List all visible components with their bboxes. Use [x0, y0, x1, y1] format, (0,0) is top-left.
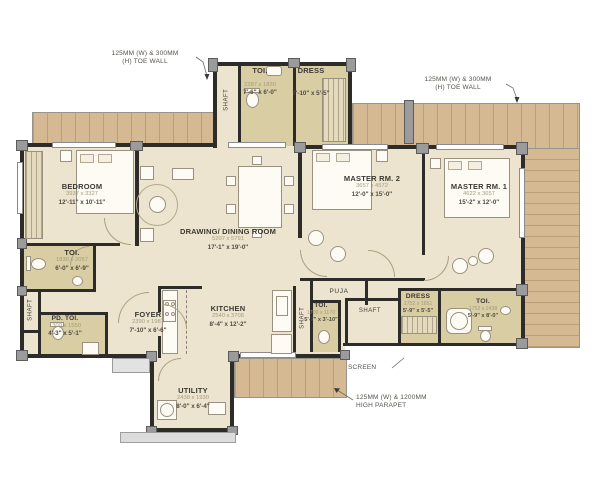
leader-lines — [0, 0, 600, 480]
floor-plan: TOI. 2287 x 1830 7'-6" x 6'-0" DRESS 7'-… — [0, 0, 600, 480]
